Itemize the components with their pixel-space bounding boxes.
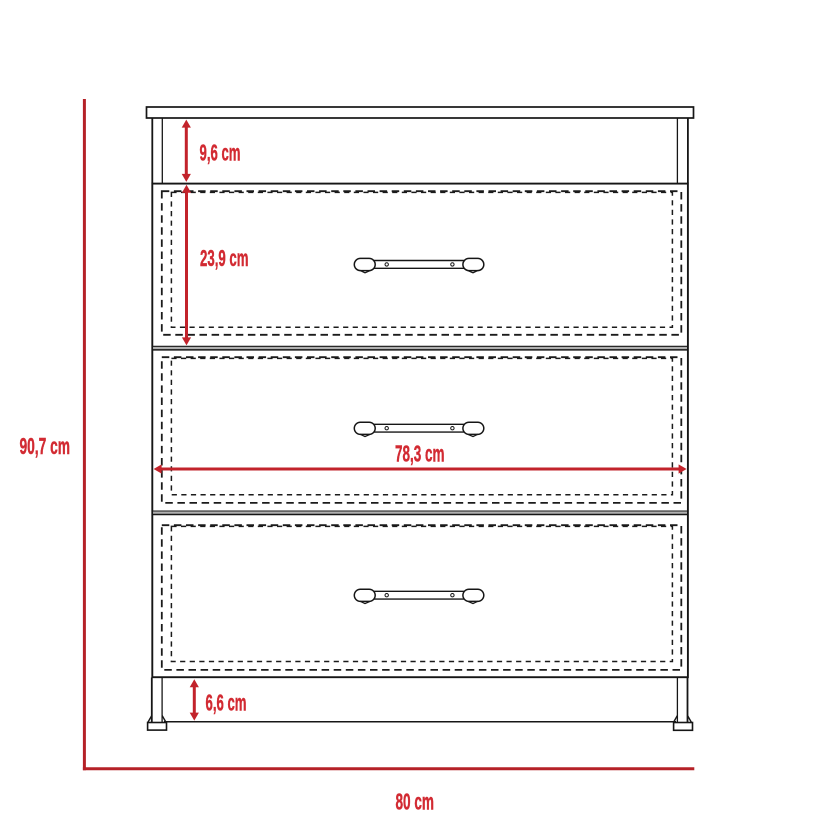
svg-text:23,9 cm: 23,9 cm	[200, 245, 249, 271]
svg-text:9,6 cm: 9,6 cm	[200, 140, 241, 166]
svg-text:80 cm: 80 cm	[396, 789, 435, 815]
svg-text:78,3 cm: 78,3 cm	[395, 441, 445, 467]
svg-text:90,7 cm: 90,7 cm	[20, 433, 71, 459]
svg-text:6,6 cm: 6,6 cm	[206, 690, 247, 716]
